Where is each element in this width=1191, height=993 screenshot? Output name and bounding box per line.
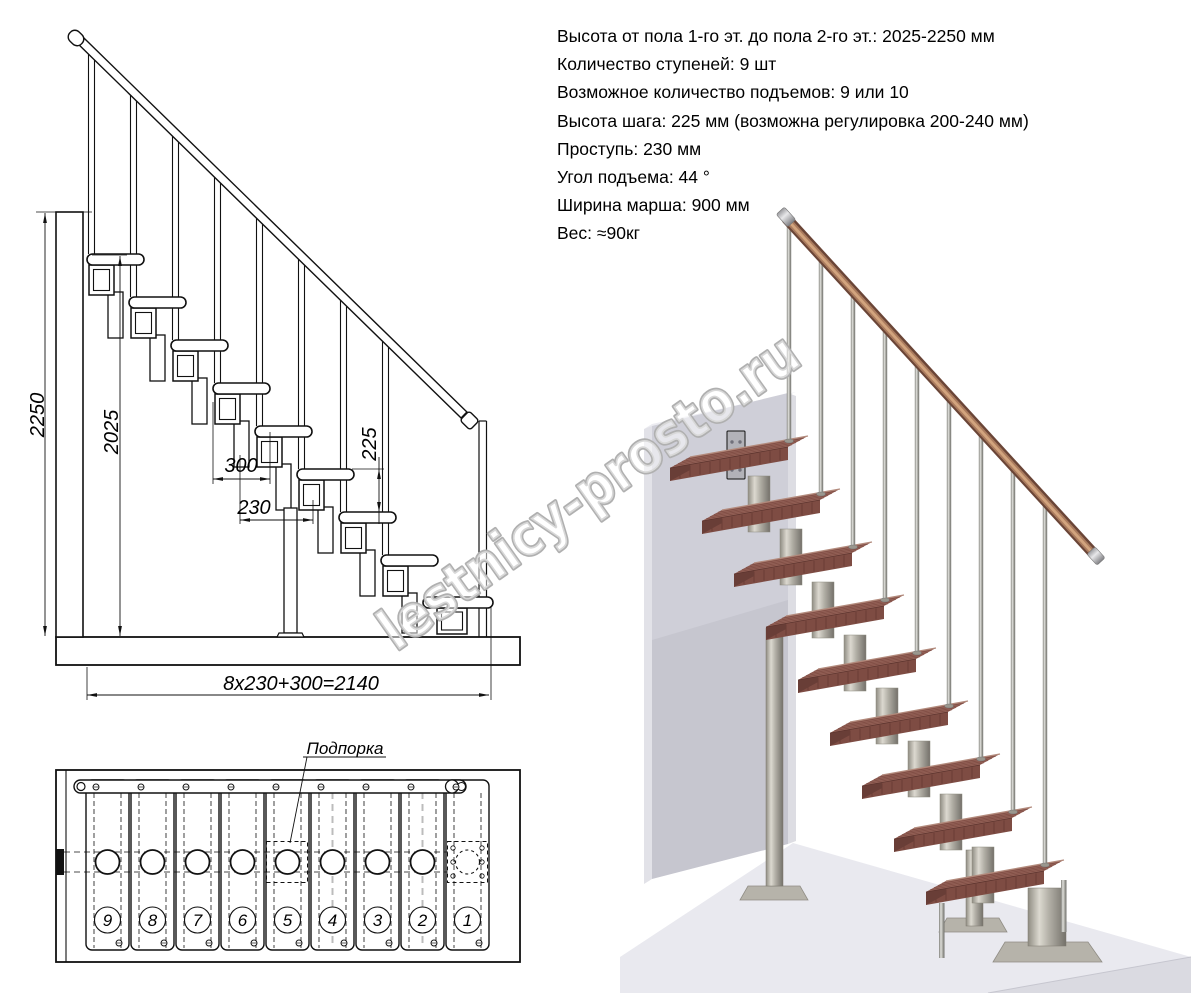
- spec-line: Высота от пола 1-го эт. до пола 2-го эт.…: [557, 22, 1029, 50]
- dim-label-total-run: 8x230+300=2140: [223, 673, 379, 695]
- dim-label-total-height: 2250: [27, 393, 49, 439]
- spec-line: Вес: ≈90кг: [557, 219, 1029, 247]
- step-number-7: 7: [193, 911, 203, 930]
- top-view-geometry: [56, 757, 520, 962]
- dim-label-rise: 225: [359, 426, 381, 461]
- dim-label-run: 230: [236, 497, 270, 519]
- spec-line: Высота шага: 225 мм (возможна регулировк…: [557, 107, 1029, 135]
- render-3d: [620, 207, 1191, 993]
- spec-line: Возможное количество подъемов: 9 или 10: [557, 78, 1029, 106]
- step-number-3: 3: [373, 911, 383, 930]
- step-number-1: 1: [463, 911, 472, 930]
- page: 2250 2025 300 230 225 8x230+300=2140 Под…: [0, 0, 1191, 993]
- top-view-drawing: Подпорка 9 8 7 6 5 4 3 2 1: [56, 739, 520, 962]
- dim-label-2025: 2025: [101, 409, 123, 455]
- spec-line: Количество ступеней: 9 шт: [557, 50, 1029, 78]
- specs-block: Высота от пола 1-го эт. до пола 2-го эт.…: [557, 22, 1029, 248]
- step-number-9: 9: [103, 911, 113, 930]
- step-number-2: 2: [417, 911, 428, 930]
- step-number-5: 5: [283, 911, 293, 930]
- spec-line: Угол подъема: 44 °: [557, 163, 1029, 191]
- step-number-8: 8: [148, 911, 158, 930]
- dim-label-tread-depth: 300: [224, 455, 257, 477]
- support-label: Подпорка: [307, 739, 384, 758]
- spec-line: Проступь: 230 мм: [557, 135, 1029, 163]
- step-number-4: 4: [328, 911, 337, 930]
- spec-line: Ширина марша: 900 мм: [557, 191, 1029, 219]
- step-number-6: 6: [238, 911, 248, 930]
